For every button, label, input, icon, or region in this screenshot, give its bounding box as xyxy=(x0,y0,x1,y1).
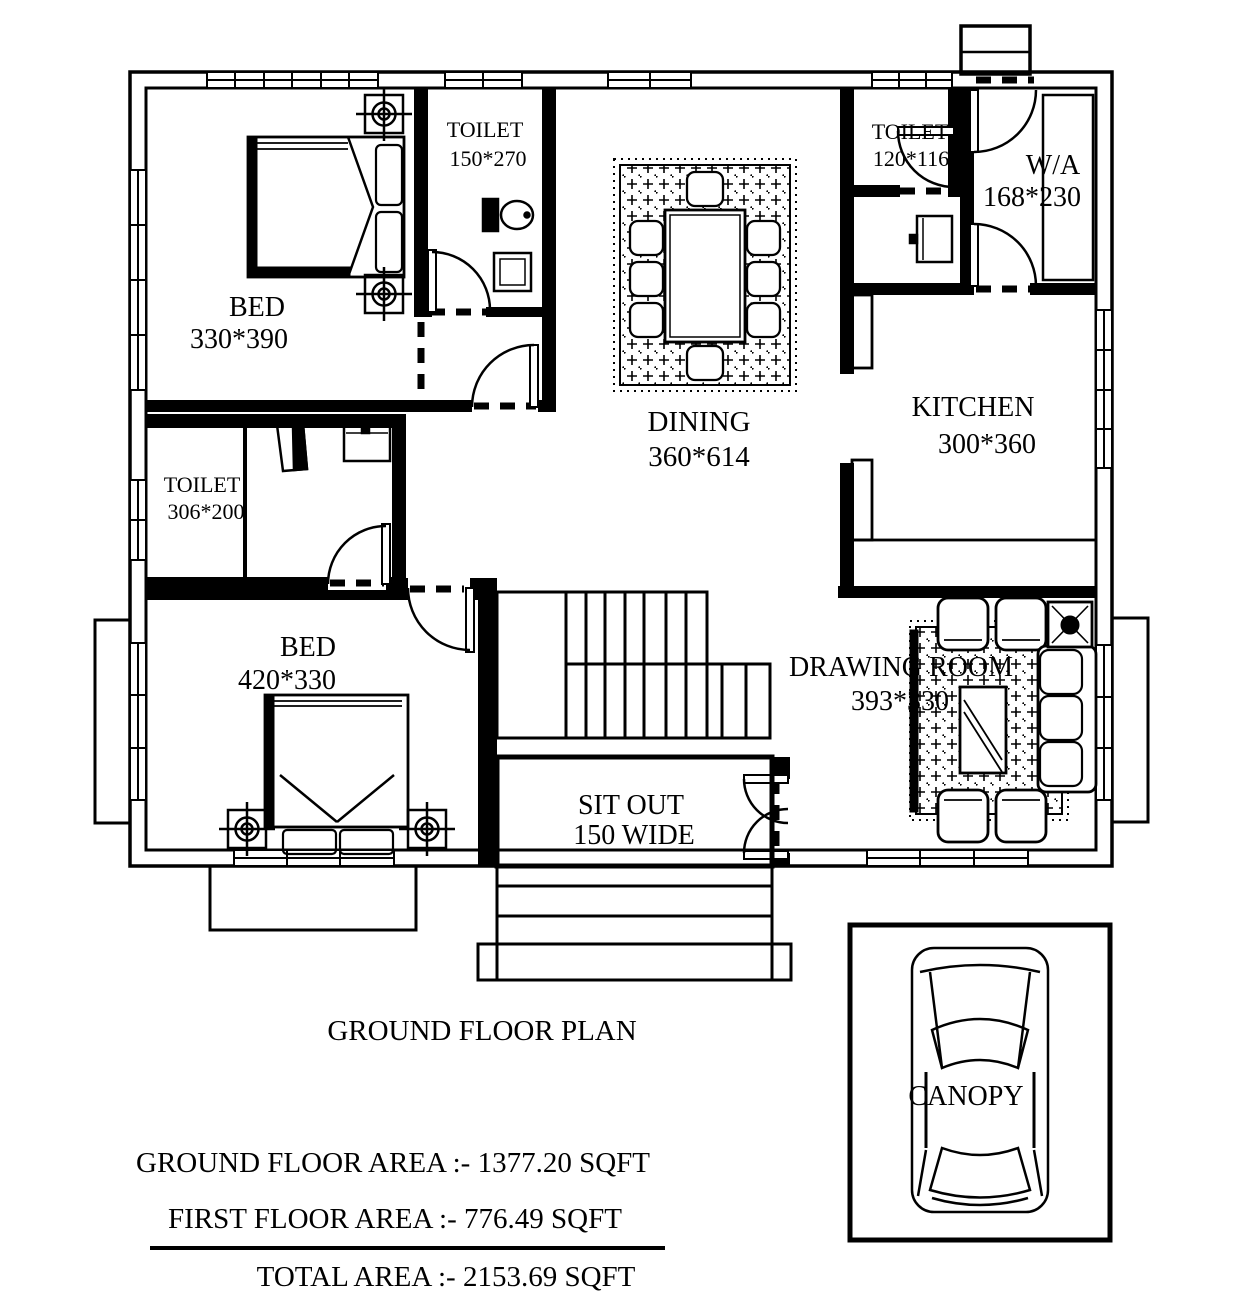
room-dims-toilet2: 120*116 xyxy=(873,146,949,171)
total-area: TOTAL AREA :- 2153.69 SQFT xyxy=(257,1261,636,1292)
toilet1-fixtures xyxy=(483,199,533,291)
right-bay-projection xyxy=(1112,618,1148,822)
double-door-sitout xyxy=(744,775,788,859)
room-label-kitchen: KITCHEN xyxy=(912,392,1035,423)
room-label-wa: W/A xyxy=(1026,150,1081,181)
room-dims-drawing: 393*330 xyxy=(851,686,949,717)
summary-block: GROUND FLOOR PLAN GROUND FLOOR AREA :- 1… xyxy=(136,1015,665,1292)
room-label-dining: DINING xyxy=(647,406,750,438)
door-bed1 xyxy=(472,345,538,407)
chimney-projection xyxy=(961,26,1030,74)
plant-icon xyxy=(1061,616,1079,634)
room-dims-toilet1: 150*270 xyxy=(450,146,527,171)
floor-plan-page: BED 330*390 TOILET 150*270 DINING 360*61… xyxy=(0,0,1240,1292)
door-toilet1 xyxy=(428,250,490,312)
room-dims-toilet3: 306*200 xyxy=(168,499,245,524)
corner-table-plant xyxy=(1048,602,1092,647)
window-top-bed1 xyxy=(207,72,378,88)
left-bay-projection xyxy=(95,620,130,823)
window-bottom-drawing xyxy=(867,850,1028,866)
floor-plan-drawing: BED 330*390 TOILET 150*270 DINING 360*61… xyxy=(0,0,1240,1292)
room-label-sitout: SIT OUT xyxy=(578,790,684,821)
washbasin-icon xyxy=(494,253,531,291)
room-dims-sitout: 150 WIDE xyxy=(573,820,695,851)
room-dims-bed1: 330*390 xyxy=(190,324,288,355)
staircase xyxy=(497,592,770,738)
window-left-bed1 xyxy=(130,170,146,390)
room-label-drawing: DRAWING ROOM xyxy=(789,652,1013,683)
room-dims-wa: 168*230 xyxy=(983,182,1081,213)
window-left-toilet3 xyxy=(130,480,146,560)
room-label-toilet2: TOILET xyxy=(872,119,949,144)
car-top-view-icon xyxy=(912,948,1048,1212)
window-right-drawing xyxy=(1096,645,1112,800)
toilet3-fixtures xyxy=(277,423,390,471)
room-label-bed2: BED xyxy=(280,632,336,663)
bucket-icon xyxy=(277,424,307,471)
room-label-bed1: BED xyxy=(229,292,285,323)
door-toilet3 xyxy=(328,524,390,584)
toilet2-fixtures xyxy=(910,216,952,262)
sit-out-steps xyxy=(478,866,791,980)
dining-table xyxy=(665,210,745,342)
washbasin-icon xyxy=(910,216,952,262)
column-marker-icon xyxy=(356,87,412,141)
first-floor-area: FIRST FLOOR AREA :- 776.49 SQFT xyxy=(168,1203,622,1235)
window-top-hall-2 xyxy=(608,72,691,88)
room-label-toilet1: TOILET xyxy=(447,117,524,142)
wc-icon xyxy=(483,199,533,231)
dining-furniture xyxy=(614,159,796,391)
room-dims-dining: 360*614 xyxy=(648,441,750,473)
room-dims-bed2: 420*330 xyxy=(238,665,336,696)
center-table xyxy=(960,687,1006,773)
door-wa-top xyxy=(970,90,1036,152)
door-wa-bottom xyxy=(970,224,1036,286)
room-label-toilet3: TOILET xyxy=(164,472,241,497)
window-left-bed2 xyxy=(130,643,146,800)
bed2-furniture xyxy=(265,695,408,854)
bottom-left-step xyxy=(210,866,416,930)
sofa xyxy=(1038,646,1096,792)
room-label-canopy: CANOPY xyxy=(908,1081,1023,1112)
sink-icon xyxy=(344,423,390,461)
window-right-kitchen xyxy=(1096,310,1112,468)
ground-floor-area: GROUND FLOOR AREA :- 1377.20 SQFT xyxy=(136,1147,650,1179)
door-bed2 xyxy=(408,588,474,652)
window-top-toilet2 xyxy=(872,72,952,88)
plan-title: GROUND FLOOR PLAN xyxy=(327,1015,636,1047)
room-dims-kitchen: 300*360 xyxy=(938,429,1036,460)
bed1-furniture xyxy=(248,137,404,277)
window-top-hall-1 xyxy=(445,72,522,88)
window-bottom-bed2 xyxy=(234,850,394,866)
drawing-room-furniture xyxy=(910,598,1096,842)
